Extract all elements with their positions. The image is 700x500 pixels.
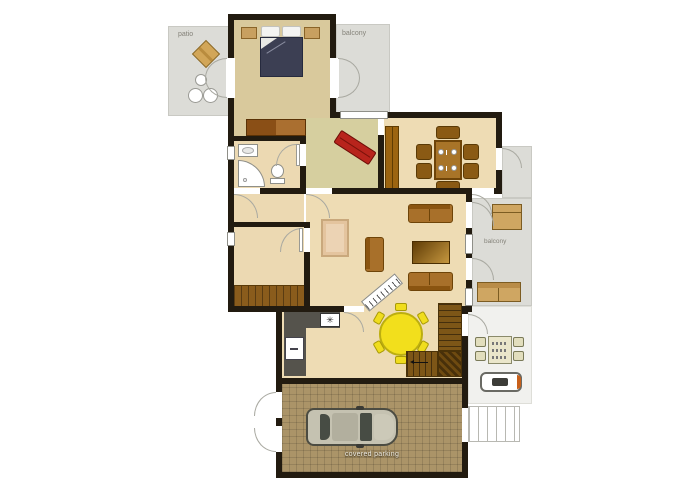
door-opening [276, 426, 282, 452]
dining-chair [436, 126, 460, 139]
toilet-tank [270, 178, 285, 184]
plate [451, 165, 457, 171]
stair-turn [438, 351, 462, 377]
dining-chair [463, 144, 479, 160]
bathroom-sink [238, 144, 258, 157]
door-opening [276, 392, 282, 418]
patio-chair [188, 88, 203, 103]
door-opening [378, 119, 384, 135]
toilet [270, 164, 285, 184]
stair-arrow [414, 362, 428, 363]
toilet-bowl [271, 164, 284, 178]
wall [228, 306, 346, 312]
grill-burner [492, 378, 508, 386]
sofa-cushion-line [429, 273, 430, 285]
patio-label: patio [178, 31, 193, 38]
plate [451, 149, 457, 155]
wall [276, 378, 468, 384]
sofa-back [409, 286, 450, 290]
floor-plan: ✳ [0, 0, 700, 500]
bench-divider [498, 288, 499, 301]
table-setting [492, 349, 508, 352]
window [465, 234, 473, 254]
armchair [365, 237, 384, 272]
car-rear-window [320, 414, 330, 440]
dining-table [434, 140, 462, 180]
car-top-view [306, 408, 398, 446]
door-opening [306, 188, 332, 194]
chest-lid-line [493, 212, 521, 213]
nightstand [304, 27, 320, 39]
door-leaf [299, 228, 303, 252]
door-opening [304, 228, 310, 252]
cutlery [446, 166, 447, 171]
door-swing-arc [254, 392, 276, 416]
nightstand [241, 27, 257, 39]
balcony-top-label: balcony [342, 30, 366, 37]
balcony-chest [492, 204, 522, 230]
balcony-right-label: balcony [484, 238, 506, 245]
barbecue-grill [480, 372, 522, 392]
door-opening [226, 58, 235, 98]
terrace-chair [475, 337, 486, 347]
pillow [282, 26, 301, 37]
wall [276, 472, 468, 478]
sink-basin [242, 147, 254, 154]
refrigerator [285, 337, 304, 360]
stair-flight-lower [406, 351, 438, 377]
stair-flight-upper [438, 303, 462, 351]
wall [228, 14, 336, 20]
rug [321, 219, 349, 257]
door-leaf [296, 144, 300, 166]
wall [228, 222, 310, 227]
door-opening [234, 188, 260, 194]
double-bed [260, 37, 303, 77]
table-setting [492, 342, 508, 345]
bench-back [478, 283, 520, 288]
wall [276, 306, 282, 384]
dresser [246, 119, 306, 136]
car-mirror [356, 406, 364, 410]
car-hood [374, 414, 394, 440]
grill-side-shelf [517, 375, 521, 389]
dining-chair [463, 163, 479, 179]
car-roof [332, 413, 358, 441]
dining-chair [416, 163, 432, 179]
car-mirror [356, 444, 364, 448]
patio-table-stripe [198, 47, 213, 62]
cutlery [446, 150, 447, 155]
breakfast-chair [395, 303, 407, 311]
balcony-bench [477, 282, 521, 302]
wardrobe-line [392, 127, 393, 189]
sofa [408, 272, 453, 291]
terrace-chair [513, 337, 524, 347]
pillow [261, 26, 280, 37]
dining-chair [416, 144, 432, 160]
stair-arrow-head [410, 360, 414, 364]
armchair-back [366, 238, 370, 269]
door-swing-arc [254, 428, 276, 452]
door-opening [472, 188, 494, 194]
terrace-table [488, 336, 512, 364]
terrace-chair [513, 351, 524, 361]
outdoor-steps [468, 406, 520, 442]
door-opening [300, 144, 306, 166]
door-opening [344, 306, 364, 312]
window [227, 146, 235, 160]
fridge-handle [290, 348, 298, 350]
table-setting [492, 356, 508, 359]
wardrobe [385, 126, 399, 190]
terrace-chair [475, 351, 486, 361]
plate [438, 165, 444, 171]
car-windshield [360, 413, 372, 441]
covered-parking-label: covered parking [282, 451, 462, 458]
window [340, 111, 388, 119]
sofa-cushion-line [429, 209, 430, 221]
shower-drain [243, 178, 247, 182]
sofa [408, 204, 453, 223]
dresser-right-half [276, 120, 305, 135]
door-opening [462, 408, 468, 442]
plate [438, 149, 444, 155]
coffee-table [412, 241, 450, 264]
closet-wood-floor [234, 285, 304, 306]
window [465, 288, 473, 306]
wall [228, 136, 306, 141]
stove: ✳ [320, 313, 340, 327]
window [227, 232, 235, 246]
